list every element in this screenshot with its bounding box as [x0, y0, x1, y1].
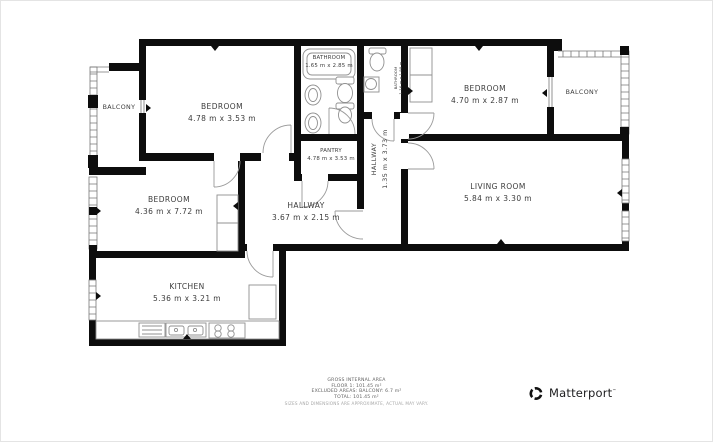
room-dims: 5.84 m x 3.30 m: [464, 193, 532, 205]
matterport-icon: [528, 385, 544, 401]
room-dims: 4.78 m x 3.53 m: [188, 113, 256, 125]
room-dims: 3.67 m x 2.15 m: [272, 212, 340, 224]
room-dims: 1.16 m x 1.98 m: [398, 62, 403, 95]
room-name: BEDROOM: [451, 83, 519, 95]
sink-icon: [364, 77, 379, 92]
room-label-balcony-left: BALCONY: [103, 104, 136, 112]
room-name: BEDROOM: [135, 194, 203, 206]
room-label-bedroom-3: BEDROOM 4.36 m x 7.72 m: [135, 194, 203, 218]
room-name: BALCONY: [566, 89, 599, 97]
fridge-icon: [249, 285, 276, 319]
floorplan-canvas: [1, 1, 713, 442]
brand-wordmark: Matterport™: [549, 386, 617, 400]
room-label-bathroom-2: BATHROOM 1.16 m x 1.98 m: [393, 62, 403, 95]
room-label-bathroom-1: BATHROOM 1.65 m x 2.85 m: [305, 54, 353, 70]
room-label-bedroom-1: BEDROOM 4.78 m x 3.53 m: [188, 101, 256, 125]
room-label-balcony-right: BALCONY: [566, 89, 599, 97]
room-dims: 4.70 m x 2.87 m: [451, 95, 519, 107]
closet-icon: [410, 48, 432, 102]
room-label-hallway-main: HALLWAY 3.67 m x 2.15 m: [272, 200, 340, 224]
room-label-bedroom-2: BEDROOM 4.70 m x 2.87 m: [451, 83, 519, 107]
room-dims: 4.78 m x 3.53 m: [307, 155, 355, 163]
brand-text: Matterport: [549, 386, 612, 400]
room-name: BALCONY: [103, 104, 136, 112]
stove-icon: [209, 323, 245, 338]
room-label-hallway-upper: HALLWAY 1.35 m x 3.73 m: [369, 129, 391, 189]
room-name: BATHROOM: [305, 54, 353, 62]
sink-icon: [305, 113, 321, 133]
room-label-pantry: PANTRY 4.78 m x 3.53 m: [307, 147, 355, 163]
room-name: HALLWAY: [272, 200, 340, 212]
matterport-logo: Matterport™: [528, 385, 617, 401]
room-dims: 4.36 m x 7.72 m: [135, 206, 203, 218]
toilet-icon: [336, 77, 354, 103]
dishwasher-icon: [139, 323, 165, 337]
room-dims: 5.36 m x 3.21 m: [153, 293, 221, 305]
area-disclaimer: SIZES AND DIMENSIONS ARE APPROXIMATE, AC…: [1, 401, 712, 406]
room-label-living-room: LIVING ROOM 5.84 m x 3.30 m: [464, 181, 532, 205]
room-name: BEDROOM: [188, 101, 256, 113]
room-label-kitchen: KITCHEN 5.36 m x 3.21 m: [153, 281, 221, 305]
room-dims: 1.35 m x 3.73 m: [380, 129, 391, 189]
room-name: PANTRY: [307, 147, 355, 155]
room-dims: 1.65 m x 2.85 m: [305, 62, 353, 70]
room-name: LIVING ROOM: [464, 181, 532, 193]
closet-icon: [217, 195, 238, 251]
toilet-icon: [369, 48, 386, 71]
kitchen-sink-icon: [166, 323, 206, 337]
floorplan-page: BALCONY BEDROOM 4.78 m x 3.53 m BATHROOM…: [0, 0, 713, 442]
room-name: KITCHEN: [153, 281, 221, 293]
room-name: HALLWAY: [369, 129, 380, 189]
brand-trademark: ™: [612, 388, 616, 393]
sink-icon: [305, 85, 321, 105]
